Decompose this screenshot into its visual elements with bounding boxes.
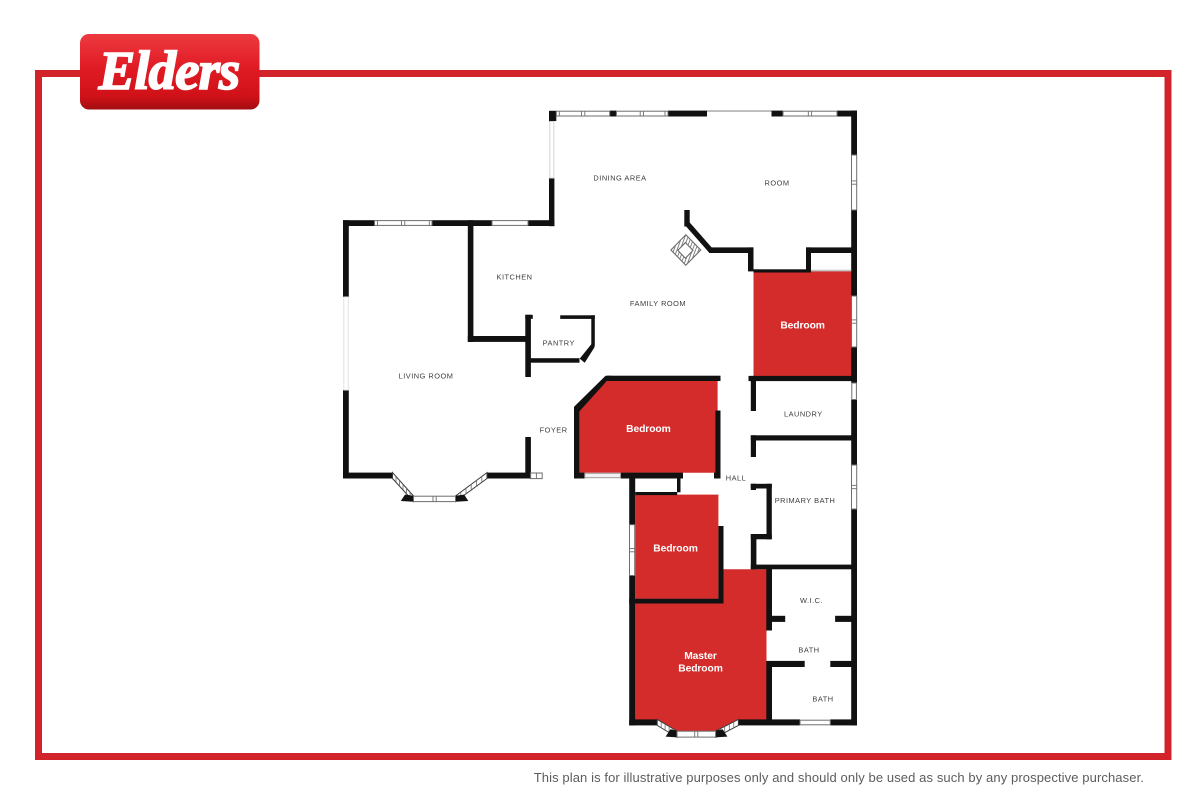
svg-text:ROOM: ROOM <box>765 179 790 188</box>
svg-text:DINING AREA: DINING AREA <box>593 173 646 182</box>
svg-text:HALL: HALL <box>726 474 747 483</box>
svg-text:FOYER: FOYER <box>540 425 568 434</box>
svg-text:Master: Master <box>684 651 717 662</box>
svg-text:Bedroom: Bedroom <box>626 424 671 435</box>
svg-text:BATH: BATH <box>812 695 833 704</box>
svg-text:W.I.C.: W.I.C. <box>800 596 823 605</box>
svg-text:Elders: Elders <box>98 40 240 101</box>
svg-text:BATH: BATH <box>798 645 819 654</box>
svg-text:PANTRY: PANTRY <box>543 338 575 347</box>
svg-text:Bedroom: Bedroom <box>780 320 825 331</box>
svg-text:This plan is for illustrative: This plan is for illustrative purposes o… <box>534 770 1144 785</box>
svg-text:LIVING ROOM: LIVING ROOM <box>399 371 454 380</box>
svg-text:KITCHEN: KITCHEN <box>497 273 533 282</box>
svg-text:LAUNDRY: LAUNDRY <box>784 409 823 418</box>
svg-text:Bedroom: Bedroom <box>653 543 698 554</box>
svg-text:PRIMARY BATH: PRIMARY BATH <box>775 496 836 505</box>
svg-text:FAMILY ROOM: FAMILY ROOM <box>630 299 686 308</box>
svg-text:Bedroom: Bedroom <box>678 664 723 675</box>
